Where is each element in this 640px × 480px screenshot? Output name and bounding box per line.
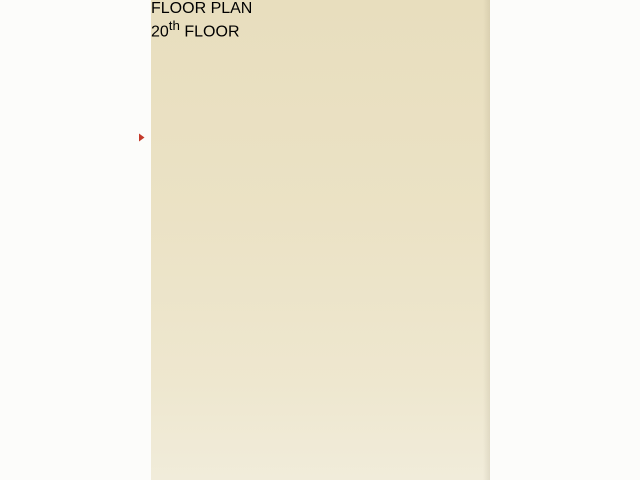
page-title: FLOOR PLAN bbox=[151, 0, 490, 18]
document-page: FLOOR PLAN 20th FLOOR bbox=[151, 0, 490, 480]
page-header: FLOOR PLAN 20th FLOOR bbox=[151, 0, 490, 47]
page-edge-shadow bbox=[483, 0, 490, 480]
red-edge-mark bbox=[139, 134, 145, 142]
floor-word: FLOOR bbox=[184, 23, 239, 40]
floor-number: 20 bbox=[151, 23, 169, 40]
floor-subtitle: 20th FLOOR bbox=[151, 18, 490, 41]
floor-ordinal: th bbox=[169, 18, 180, 33]
scanned-brochure-page: FLOOR PLAN 20th FLOOR bbox=[0, 0, 640, 480]
